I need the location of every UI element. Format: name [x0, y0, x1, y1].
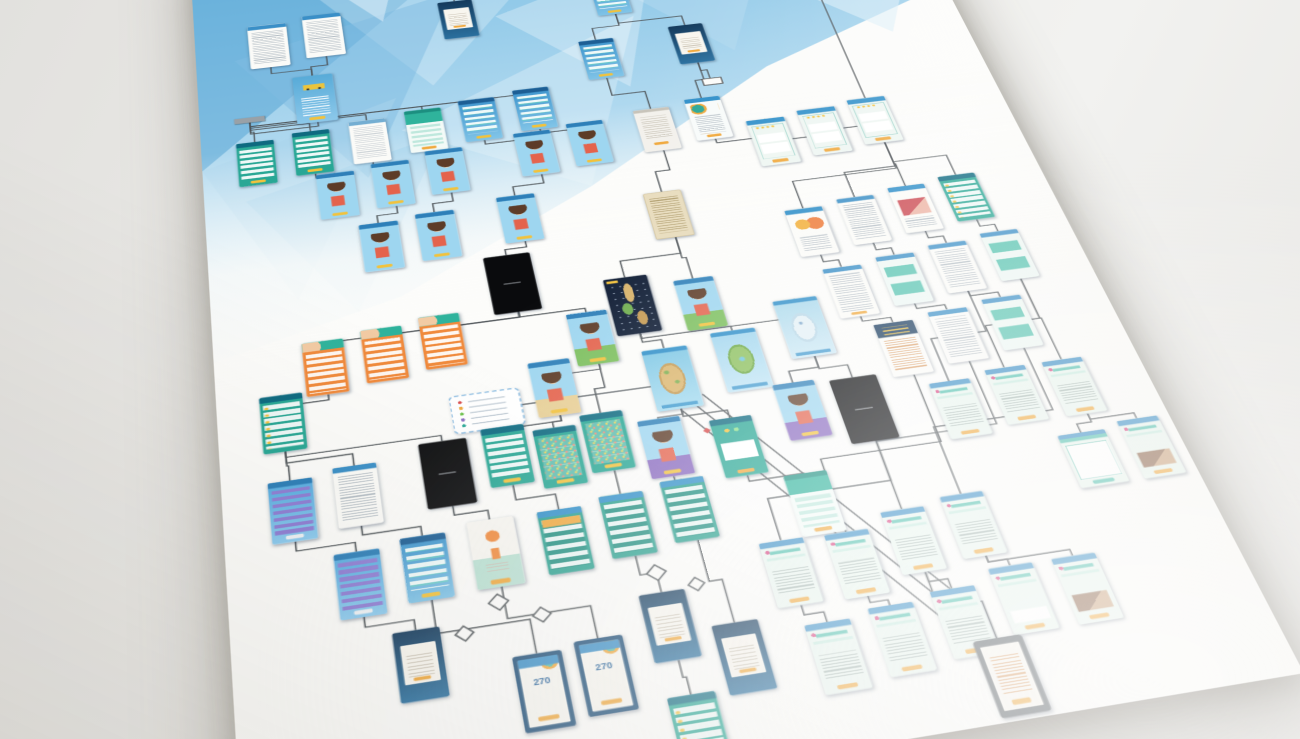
- screen-button: [491, 578, 511, 585]
- screen-button: [443, 187, 459, 192]
- screen-button: [801, 431, 819, 437]
- screen-button: [438, 471, 456, 475]
- screen-body: [462, 104, 498, 135]
- screen-button: [1017, 415, 1037, 421]
- screen-button: [1089, 612, 1111, 619]
- screen-body: [585, 419, 630, 465]
- screen-body: [649, 195, 689, 233]
- screen-button: [332, 211, 348, 216]
- screen-button: [286, 533, 305, 539]
- screen-button: [607, 9, 621, 13]
- screen-body: [506, 204, 534, 231]
- screen-button: [789, 596, 810, 603]
- screen-button: [814, 526, 833, 532]
- screen-body: [306, 19, 341, 54]
- screen-body: [577, 322, 608, 352]
- screen-body: [272, 486, 314, 535]
- screen-body: [252, 30, 287, 65]
- screen-body: [517, 93, 553, 123]
- screen-button: [707, 133, 722, 137]
- screen-button: [1024, 623, 1046, 630]
- screen-body: [541, 515, 590, 570]
- screen-body: [263, 401, 304, 450]
- screen-body: [424, 221, 452, 248]
- screen-button: [589, 357, 606, 362]
- screen-body: [485, 433, 529, 478]
- screen-button: [901, 664, 923, 672]
- photo-scene: 270270: [0, 0, 1300, 739]
- screen-purpleRows-56: [268, 477, 319, 545]
- screen-tealList-10: [236, 140, 278, 188]
- screen-button: [598, 73, 613, 77]
- screen-body: [538, 434, 583, 480]
- screen-doc-7: [302, 12, 347, 58]
- screen-body: [365, 337, 406, 380]
- screen-button: [533, 169, 549, 173]
- screen-body: [649, 429, 683, 463]
- screen-button: [837, 682, 859, 690]
- screen-button: [913, 563, 934, 570]
- screen-button: [604, 463, 622, 469]
- screen-button: [503, 477, 521, 483]
- screen-body: [434, 157, 461, 182]
- screen-docScribble-12: [348, 118, 392, 164]
- screen-button: [855, 587, 876, 594]
- screen-body: [575, 130, 603, 154]
- screen-doc-57: [332, 462, 384, 529]
- screen-tealList-11: [292, 129, 335, 176]
- screen-button: [737, 468, 755, 474]
- screen-body: [380, 170, 407, 196]
- screen-body: [338, 558, 383, 611]
- screen-button: [354, 608, 373, 615]
- screen-button: [851, 310, 868, 315]
- screen-orangeMenu-38: [360, 325, 409, 383]
- screen-body: [297, 78, 334, 117]
- screen-doc-6: [247, 23, 291, 69]
- screen-button: [875, 136, 892, 141]
- poster-paper: 270270: [190, 0, 1300, 739]
- screen-button: [556, 478, 574, 484]
- screen-button: [587, 158, 603, 162]
- screen-button: [654, 141, 669, 145]
- screen-tealIconsList-40: [259, 392, 307, 454]
- screen-orangeMenu-37: [301, 338, 349, 397]
- screen-button: [516, 235, 532, 240]
- screen-button: [973, 547, 994, 554]
- screen-body: [337, 472, 378, 522]
- screen-button: [376, 264, 392, 269]
- screen-body: [592, 0, 627, 9]
- screen-carInfo-8: [292, 73, 338, 124]
- screen-body: [689, 102, 728, 135]
- screen-body: [794, 493, 840, 528]
- screen-button: [434, 252, 450, 257]
- screen-purpleRows-60: [333, 548, 387, 620]
- screen-body: [583, 44, 619, 72]
- screen-button: [251, 179, 267, 184]
- screen-navyDialog-63: [392, 626, 450, 704]
- screen-body: [640, 115, 673, 140]
- screen-button: [1153, 468, 1173, 474]
- screen-body: [522, 140, 550, 165]
- screen-button: [421, 145, 436, 149]
- screen-body: [715, 423, 763, 468]
- screen-kid-17: [371, 160, 416, 209]
- screen-body: [368, 232, 395, 259]
- screen-formTeal-13: [404, 107, 449, 153]
- screen-button: [960, 429, 980, 435]
- screen-kid-21: [359, 221, 405, 273]
- screen-body: [784, 393, 819, 425]
- screen-button: [532, 124, 547, 128]
- screen-button: [309, 116, 326, 121]
- screen-button: [504, 282, 521, 285]
- screen-body: [324, 181, 350, 207]
- screen-body: [353, 125, 388, 160]
- screen-button: [476, 135, 491, 139]
- screen-kid-16: [316, 171, 360, 220]
- screen-body: [883, 337, 927, 372]
- screen-body: [423, 324, 464, 367]
- screen-body: [306, 350, 346, 394]
- screen-body: [410, 123, 444, 147]
- screen-button: [307, 168, 323, 172]
- screen-button: [421, 591, 440, 598]
- poster-content: 270270: [190, 0, 1300, 739]
- screen-button: [663, 469, 681, 475]
- screen-body: [538, 371, 569, 403]
- screen-body: [456, 393, 519, 429]
- screen-body: [603, 500, 653, 554]
- screen-button: [1075, 406, 1095, 412]
- screen-button: [698, 322, 715, 327]
- screen-button: [855, 407, 872, 411]
- screen-body: [684, 288, 716, 317]
- screen-body: [295, 136, 330, 169]
- screen-button: [388, 200, 404, 205]
- screen-button: [550, 408, 568, 414]
- screen-body: [608, 280, 658, 331]
- screen-button: [824, 147, 841, 152]
- screen-body: [477, 527, 513, 573]
- screen-button: [772, 158, 789, 163]
- screen-body: [405, 543, 449, 591]
- screen-body: [240, 147, 275, 180]
